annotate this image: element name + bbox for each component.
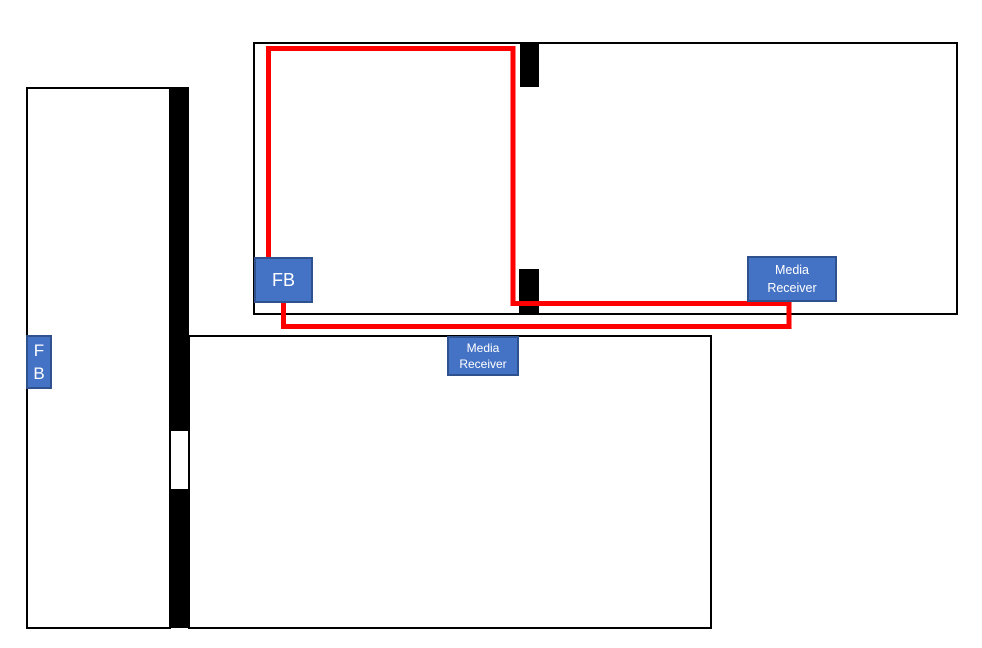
media-receiver-top-line2: Receiver	[767, 279, 816, 297]
wall-segment-middle	[519, 269, 539, 315]
floor-plan-diagram: FB F B Media Receiver Media Receiver	[0, 0, 982, 648]
media-receiver-bottom-line1: Media	[467, 340, 500, 357]
room-bottom	[188, 335, 712, 629]
fb-side-label-line1: F	[34, 339, 44, 362]
fb-box-label: FB	[272, 270, 295, 291]
fb-side-label-line2: B	[33, 362, 44, 385]
fb-box: FB	[254, 257, 313, 303]
wall-segment-left-lower	[170, 489, 189, 628]
fb-side-box: F B	[26, 335, 52, 389]
media-receiver-top-box: Media Receiver	[747, 256, 837, 302]
media-receiver-bottom-box: Media Receiver	[447, 336, 519, 376]
wall-segment-left-upper	[170, 87, 189, 431]
room-top-right	[253, 42, 958, 315]
media-receiver-bottom-line2: Receiver	[459, 356, 506, 373]
wall-segment-top	[520, 43, 539, 87]
media-receiver-top-line1: Media	[775, 261, 809, 279]
